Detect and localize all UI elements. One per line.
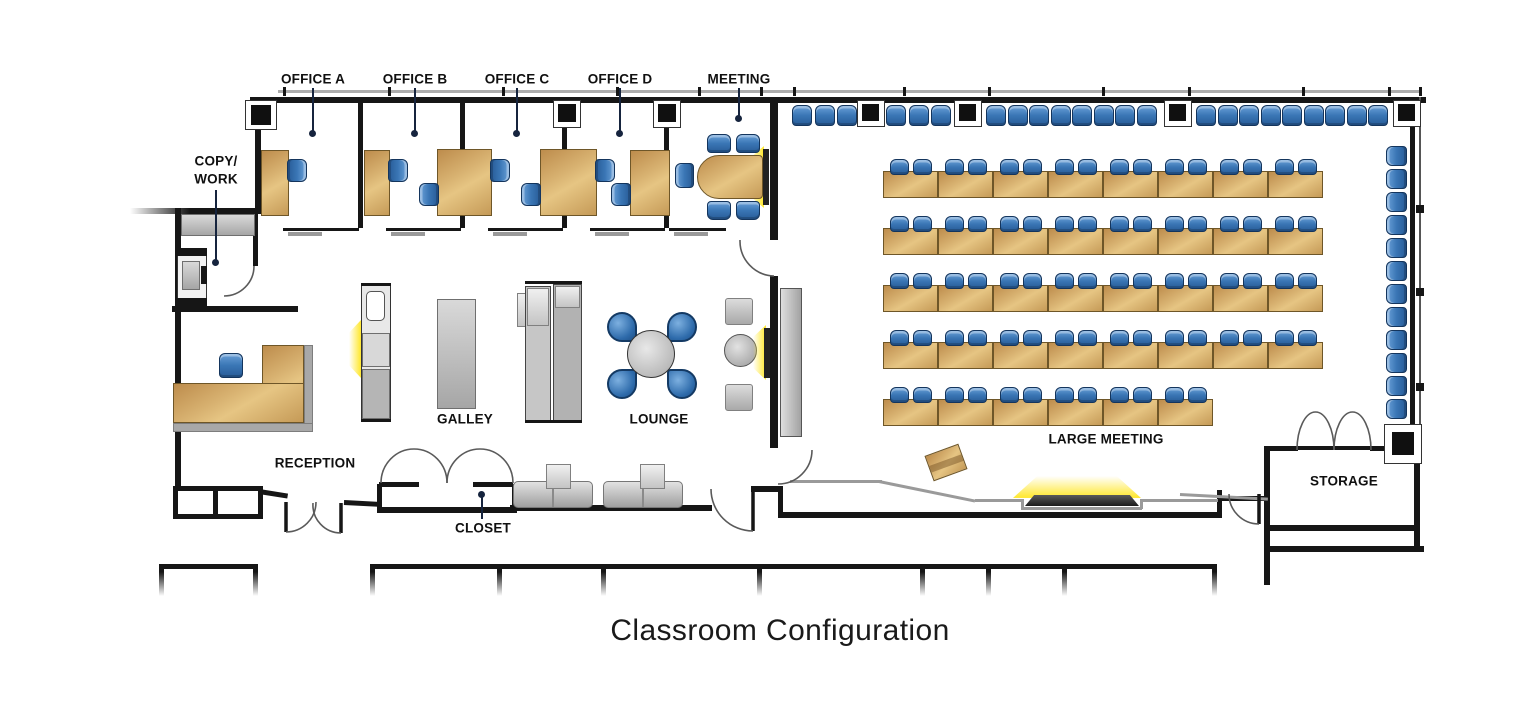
classroom-chair bbox=[1055, 159, 1074, 175]
office-c-chair bbox=[490, 159, 510, 182]
window-mullion-tick bbox=[988, 87, 991, 96]
wall-classroom-left-mid bbox=[770, 276, 778, 448]
classroom-chair bbox=[913, 159, 932, 175]
wall-storage-top-stub bbox=[1264, 446, 1298, 451]
classroom-right-chair bbox=[1386, 284, 1407, 304]
classroom-right-chair bbox=[1386, 261, 1407, 281]
door-arc-copy bbox=[224, 266, 254, 296]
classroom-chair bbox=[968, 216, 987, 232]
reception-desk-horizontal bbox=[173, 383, 304, 423]
classroom-chair bbox=[1165, 159, 1184, 175]
classroom-chair bbox=[1000, 387, 1019, 403]
wall-divider-ab bbox=[358, 100, 363, 228]
classroom-table bbox=[883, 285, 938, 312]
door-arc-entry-right bbox=[313, 503, 341, 533]
page-title: Classroom Configuration bbox=[610, 614, 949, 648]
classroom-table bbox=[883, 171, 938, 198]
classroom-chair bbox=[1078, 387, 1097, 403]
classroom-table bbox=[1103, 399, 1158, 426]
door-arc-hall bbox=[711, 489, 753, 531]
office-d-desk bbox=[630, 150, 670, 216]
galley-unit-cap-bottom bbox=[361, 419, 391, 422]
galley-cabinet-cap-top bbox=[525, 281, 582, 284]
wall-angled bbox=[259, 489, 288, 498]
classroom-chair bbox=[1243, 216, 1262, 232]
classroom-column-core bbox=[1398, 104, 1415, 121]
classroom-wall-chair bbox=[1368, 105, 1388, 126]
column-cd-core bbox=[558, 104, 576, 122]
lounge-chair-se bbox=[667, 369, 697, 399]
classroom-wall-chair bbox=[837, 105, 857, 126]
classroom-chair bbox=[1023, 216, 1042, 232]
classroom-chair bbox=[890, 273, 909, 289]
stage-line-3 bbox=[975, 499, 1023, 502]
galley-cabinet-cap-bottom bbox=[525, 420, 582, 423]
galley-unit-low bbox=[362, 369, 390, 419]
classroom-table bbox=[1268, 228, 1323, 255]
classroom-table bbox=[1103, 228, 1158, 255]
threshold-a bbox=[288, 232, 322, 236]
exterior-line-1 bbox=[159, 564, 258, 569]
classroom-chair bbox=[1188, 387, 1207, 403]
classroom-chair bbox=[1243, 273, 1262, 289]
copier-bottom-band bbox=[177, 298, 207, 306]
classroom-chair bbox=[1220, 216, 1239, 232]
window-mullion-tick bbox=[1388, 87, 1391, 96]
classroom-table bbox=[938, 228, 993, 255]
classroom-chair bbox=[1275, 330, 1294, 346]
right-mullion-3 bbox=[1416, 383, 1424, 391]
classroom-chair bbox=[890, 387, 909, 403]
classroom-right-chair bbox=[1386, 169, 1407, 189]
door-arc-entry-left bbox=[286, 502, 316, 532]
wall-entry-right bbox=[344, 500, 381, 507]
window-mullion-tick bbox=[1419, 87, 1422, 96]
lounge-chair-sw bbox=[607, 369, 637, 399]
wall-storage-right bbox=[1414, 458, 1420, 552]
classroom-chair bbox=[1055, 216, 1074, 232]
leader-office-b bbox=[414, 88, 416, 133]
classroom-wall-chair bbox=[1304, 105, 1324, 126]
classroom-wall-chair bbox=[1282, 105, 1302, 126]
classroom-table bbox=[1048, 285, 1103, 312]
classroom-table bbox=[1158, 342, 1213, 369]
meeting-table bbox=[697, 155, 763, 199]
classroom-wall-chair bbox=[986, 105, 1006, 126]
wall-storage-bottom-1 bbox=[1264, 525, 1418, 531]
classroom-table bbox=[1268, 285, 1323, 312]
classroom-right-chair bbox=[1386, 353, 1407, 373]
classroom-table bbox=[993, 399, 1048, 426]
leader-copy bbox=[215, 190, 217, 262]
exterior-tick bbox=[253, 566, 258, 596]
door-arc-classroom-lower bbox=[778, 450, 812, 484]
office-b-chair bbox=[388, 159, 408, 182]
classroom-chair bbox=[1000, 330, 1019, 346]
office-cd-desk bbox=[540, 149, 597, 216]
door-arc-closet-left bbox=[381, 449, 447, 483]
classroom-chair bbox=[1133, 330, 1152, 346]
classroom-right-chair bbox=[1386, 146, 1407, 166]
lectern bbox=[924, 444, 967, 482]
classroom-wall-chair bbox=[1072, 105, 1092, 126]
exterior-tick bbox=[920, 566, 925, 596]
wall-entry-box-divider bbox=[213, 486, 218, 519]
classroom-credenza bbox=[780, 288, 802, 437]
leader-meeting bbox=[738, 88, 740, 118]
exterior-tick bbox=[370, 566, 375, 596]
classroom-wall-chair bbox=[1051, 105, 1071, 126]
classroom-table bbox=[1103, 342, 1158, 369]
leader-dot-closet bbox=[478, 491, 485, 498]
classroom-right-chair bbox=[1386, 330, 1407, 350]
column-storage-core bbox=[1392, 432, 1414, 455]
media-round-stool bbox=[724, 334, 757, 367]
classroom-chair bbox=[1023, 387, 1042, 403]
classroom-table bbox=[883, 342, 938, 369]
classroom-chair bbox=[1298, 159, 1317, 175]
media-stool-top bbox=[725, 298, 753, 325]
galley-glow bbox=[349, 320, 361, 378]
classroom-table bbox=[1048, 228, 1103, 255]
wall-storage-left bbox=[1264, 450, 1270, 585]
classroom-chair bbox=[1165, 273, 1184, 289]
wall-right-outer-line bbox=[1419, 97, 1421, 464]
classroom-chair bbox=[1188, 330, 1207, 346]
right-mullion-2 bbox=[1416, 288, 1424, 296]
threshold-b bbox=[391, 232, 425, 236]
copy-counter bbox=[181, 214, 255, 236]
classroom-chair bbox=[1023, 159, 1042, 175]
classroom-wall-chair bbox=[1347, 105, 1367, 126]
wall-office-b-front bbox=[386, 228, 461, 231]
door-arc-storage-right bbox=[1334, 412, 1371, 450]
wall-stub-1217 bbox=[1217, 490, 1222, 516]
classroom-chair bbox=[945, 387, 964, 403]
classroom-column-core bbox=[862, 104, 879, 121]
classroom-right-chair bbox=[1386, 192, 1407, 212]
wall-right bbox=[1410, 97, 1415, 462]
classroom-table bbox=[1213, 171, 1268, 198]
lectern-stripe bbox=[929, 454, 963, 472]
wall-classroom-left-upper bbox=[770, 100, 778, 240]
meeting-chair-top-1 bbox=[707, 134, 731, 153]
copier-top-band bbox=[177, 248, 207, 256]
leader-dot-office-d bbox=[616, 130, 623, 137]
classroom-table bbox=[1158, 228, 1213, 255]
label-lounge: LOUNGE bbox=[630, 412, 689, 427]
stage-line-7 bbox=[1141, 499, 1218, 502]
window-mullion-tick bbox=[1302, 87, 1305, 96]
window-mullion-tick bbox=[760, 87, 763, 96]
wall-storage-bottom-2 bbox=[1264, 546, 1424, 552]
label-office-d: OFFICE D bbox=[588, 72, 653, 87]
classroom-chair bbox=[1078, 330, 1097, 346]
storage-doors-closed bbox=[1296, 446, 1372, 450]
classroom-column-core bbox=[959, 104, 976, 121]
leader-dot-meeting bbox=[735, 115, 742, 122]
classroom-chair bbox=[913, 273, 932, 289]
classroom-table bbox=[1268, 171, 1323, 198]
classroom-chair bbox=[1165, 216, 1184, 232]
label-office-c: OFFICE C bbox=[485, 72, 550, 87]
classroom-wall-chair bbox=[886, 105, 906, 126]
classroom-chair bbox=[1110, 387, 1129, 403]
reception-desk-rim-v bbox=[304, 345, 313, 432]
classroom-right-chair bbox=[1386, 399, 1407, 419]
window-mullion-tick bbox=[283, 87, 286, 96]
classroom-chair bbox=[1165, 387, 1184, 403]
classroom-chair bbox=[890, 159, 909, 175]
classroom-right-chair bbox=[1386, 376, 1407, 396]
window-mullion-tick bbox=[388, 87, 391, 96]
reception-desk-rim-h bbox=[173, 423, 313, 432]
classroom-wall-chair bbox=[1239, 105, 1259, 126]
projection-screen-glow bbox=[1013, 476, 1141, 498]
classroom-table bbox=[993, 342, 1048, 369]
classroom-table bbox=[938, 171, 993, 198]
classroom-chair bbox=[1243, 159, 1262, 175]
classroom-right-chair bbox=[1386, 307, 1407, 327]
classroom-wall-chair bbox=[909, 105, 929, 126]
meeting-chair-bottom-2 bbox=[736, 201, 760, 220]
classroom-right-chair bbox=[1386, 238, 1407, 258]
top-window-line bbox=[278, 90, 1421, 93]
window-mullion-tick bbox=[698, 87, 701, 96]
window-mullion-tick bbox=[502, 87, 505, 96]
leader-closet bbox=[481, 497, 483, 519]
exterior-tick bbox=[1212, 566, 1217, 596]
office-d-chair bbox=[595, 159, 615, 182]
reception-chair bbox=[219, 353, 243, 378]
classroom-table bbox=[993, 228, 1048, 255]
classroom-chair bbox=[1110, 273, 1129, 289]
classroom-chair bbox=[1055, 330, 1074, 346]
classroom-table bbox=[938, 285, 993, 312]
classroom-table bbox=[1158, 399, 1213, 426]
classroom-chair bbox=[1243, 330, 1262, 346]
classroom-table bbox=[938, 399, 993, 426]
wall-office-d-front bbox=[590, 228, 665, 231]
classroom-chair bbox=[1133, 387, 1152, 403]
classroom-chair bbox=[913, 216, 932, 232]
classroom-chair bbox=[945, 273, 964, 289]
wall-before-divider bbox=[751, 486, 778, 492]
meeting-chair-top-2 bbox=[736, 134, 760, 153]
classroom-chair bbox=[1165, 330, 1184, 346]
classroom-chair bbox=[1298, 273, 1317, 289]
classroom-chair bbox=[945, 330, 964, 346]
label-copy-line1: COPY/ bbox=[194, 154, 237, 169]
media-screen bbox=[764, 328, 770, 378]
classroom-table bbox=[993, 171, 1048, 198]
window-mullion-tick bbox=[903, 87, 906, 96]
label-office-a: OFFICE A bbox=[281, 72, 345, 87]
classroom-chair bbox=[1000, 159, 1019, 175]
label-meeting: MEETING bbox=[708, 72, 771, 87]
classroom-chair bbox=[945, 159, 964, 175]
classroom-table bbox=[1213, 285, 1268, 312]
leader-office-d bbox=[619, 88, 621, 133]
leader-office-c bbox=[516, 88, 518, 133]
galley-cabinet-right-top bbox=[555, 286, 580, 308]
office-bc-desk bbox=[437, 149, 492, 216]
label-closet: CLOSET bbox=[455, 521, 511, 536]
galley-cabinet-left-top bbox=[527, 288, 549, 326]
classroom-wall-chair bbox=[815, 105, 835, 126]
classroom-chair bbox=[1133, 159, 1152, 175]
galley-sink bbox=[366, 291, 385, 321]
leader-dot-office-c bbox=[513, 130, 520, 137]
classroom-chair bbox=[1133, 216, 1152, 232]
floor-plan: OFFICE A OFFICE B OFFICE C OFFICE D MEET… bbox=[0, 0, 1536, 724]
door-arc-classroom-upper bbox=[740, 240, 774, 276]
meeting-screen bbox=[763, 149, 769, 205]
classroom-wall-chair bbox=[792, 105, 812, 126]
classroom-chair bbox=[1275, 273, 1294, 289]
classroom-table bbox=[1158, 171, 1213, 198]
classroom-chair bbox=[1023, 273, 1042, 289]
classroom-table bbox=[1048, 171, 1103, 198]
classroom-wall-chair bbox=[1029, 105, 1049, 126]
classroom-wall-chair bbox=[1325, 105, 1345, 126]
classroom-chair bbox=[1078, 216, 1097, 232]
classroom-chair bbox=[1220, 159, 1239, 175]
bench-table-2 bbox=[640, 464, 665, 489]
classroom-chair bbox=[1275, 159, 1294, 175]
classroom-chair bbox=[1188, 273, 1207, 289]
closet-sill-left bbox=[379, 482, 419, 487]
closet-stub-left bbox=[377, 484, 382, 512]
classroom-chair bbox=[1110, 330, 1129, 346]
label-reception: RECEPTION bbox=[275, 456, 356, 471]
classroom-table bbox=[1213, 342, 1268, 369]
office-d-chair-2 bbox=[611, 183, 631, 206]
classroom-chair bbox=[968, 387, 987, 403]
closet-back-wall bbox=[377, 507, 517, 513]
classroom-chair bbox=[1275, 216, 1294, 232]
leader-office-a bbox=[312, 88, 314, 133]
classroom-chair bbox=[1000, 216, 1019, 232]
classroom-wall-chair bbox=[1008, 105, 1028, 126]
door-arc-storage-left bbox=[1297, 412, 1334, 450]
wall-office-c-front bbox=[488, 228, 563, 231]
classroom-right-chair bbox=[1386, 215, 1407, 235]
window-mullion-tick bbox=[1188, 87, 1191, 96]
classroom-chair bbox=[1220, 330, 1239, 346]
wall-meeting-front bbox=[669, 228, 726, 231]
leader-dot-copy bbox=[212, 259, 219, 266]
classroom-wall-chair bbox=[931, 105, 951, 126]
classroom-table bbox=[1103, 171, 1158, 198]
classroom-chair bbox=[1055, 273, 1074, 289]
classroom-chair bbox=[968, 273, 987, 289]
classroom-table bbox=[883, 228, 938, 255]
office-a-chair bbox=[287, 159, 307, 182]
label-galley: GALLEY bbox=[437, 412, 493, 427]
window-mullion-tick bbox=[793, 87, 796, 96]
exterior-tick bbox=[159, 566, 164, 596]
wall-office-a-front bbox=[283, 228, 359, 231]
wall-classroom-bottom bbox=[778, 512, 1222, 518]
threshold-meeting bbox=[674, 232, 708, 236]
classroom-table bbox=[1048, 342, 1103, 369]
classroom-chair bbox=[1000, 273, 1019, 289]
classroom-table bbox=[1268, 342, 1323, 369]
meeting-chair-bottom-1 bbox=[707, 201, 731, 220]
label-large-meeting: LARGE MEETING bbox=[1048, 432, 1163, 447]
classroom-table bbox=[1103, 285, 1158, 312]
classroom-chair bbox=[1078, 273, 1097, 289]
classroom-chair bbox=[890, 216, 909, 232]
classroom-chair bbox=[1298, 216, 1317, 232]
classroom-chair bbox=[1298, 330, 1317, 346]
copier-tray bbox=[182, 261, 200, 290]
classroom-wall-chair bbox=[1137, 105, 1157, 126]
meeting-chair-left bbox=[675, 163, 694, 188]
exterior-tick bbox=[757, 566, 762, 596]
classroom-chair bbox=[1220, 273, 1239, 289]
classroom-chair bbox=[1055, 387, 1074, 403]
classroom-chair bbox=[968, 159, 987, 175]
media-stool-bottom bbox=[725, 384, 753, 411]
office-b-desk bbox=[364, 150, 390, 216]
classroom-chair bbox=[1023, 330, 1042, 346]
galley-unit-mid bbox=[362, 333, 390, 367]
exterior-line-2 bbox=[370, 564, 1217, 569]
threshold-c bbox=[493, 232, 527, 236]
copier-tab bbox=[201, 266, 207, 284]
classroom-chair bbox=[1188, 159, 1207, 175]
column-corner-a-core bbox=[251, 105, 271, 125]
classroom-table bbox=[1048, 399, 1103, 426]
classroom-chair bbox=[1078, 159, 1097, 175]
bench-table-1 bbox=[546, 464, 571, 489]
column-dm-core bbox=[658, 104, 676, 122]
wall-top bbox=[250, 97, 1426, 103]
projection-screen bbox=[1025, 495, 1139, 506]
classroom-wall-chair bbox=[1196, 105, 1216, 126]
window-mullion-tick bbox=[1102, 87, 1105, 96]
classroom-chair bbox=[968, 330, 987, 346]
classroom-table bbox=[993, 285, 1048, 312]
lounge-round-table bbox=[627, 330, 675, 378]
wall-entry-box bbox=[173, 486, 263, 519]
exterior-tick bbox=[1062, 566, 1067, 596]
classroom-column-core bbox=[1169, 104, 1186, 121]
classroom-chair bbox=[1110, 159, 1129, 175]
label-storage: STORAGE bbox=[1310, 474, 1378, 489]
classroom-wall-chair bbox=[1261, 105, 1281, 126]
door-arc-closet-right bbox=[447, 449, 513, 483]
classroom-table bbox=[938, 342, 993, 369]
exterior-tick bbox=[601, 566, 606, 596]
classroom-chair bbox=[1133, 273, 1152, 289]
classroom-wall-chair bbox=[1094, 105, 1114, 126]
stage-line-1 bbox=[790, 480, 882, 483]
closet-sill-right bbox=[473, 482, 513, 487]
leader-dot-office-a bbox=[309, 130, 316, 137]
office-c-chair-2 bbox=[521, 183, 541, 206]
classroom-table bbox=[1158, 285, 1213, 312]
right-mullion-1 bbox=[1416, 205, 1424, 213]
label-office-b: OFFICE B bbox=[383, 72, 448, 87]
classroom-chair bbox=[1110, 216, 1129, 232]
stage-line-2 bbox=[879, 480, 976, 502]
galley-unit-cap-top bbox=[361, 283, 391, 286]
classroom-chair bbox=[1188, 216, 1207, 232]
classroom-table bbox=[1213, 228, 1268, 255]
